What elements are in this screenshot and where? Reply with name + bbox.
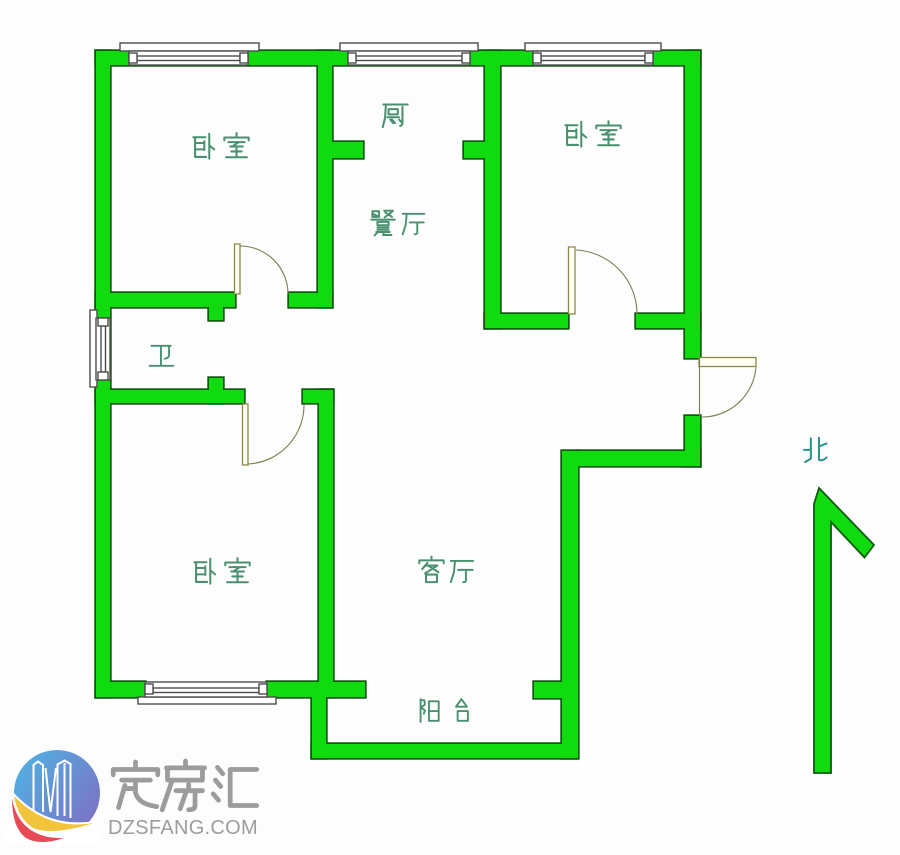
svg-text:DZSFANG.COM: DZSFANG.COM: [108, 817, 258, 839]
